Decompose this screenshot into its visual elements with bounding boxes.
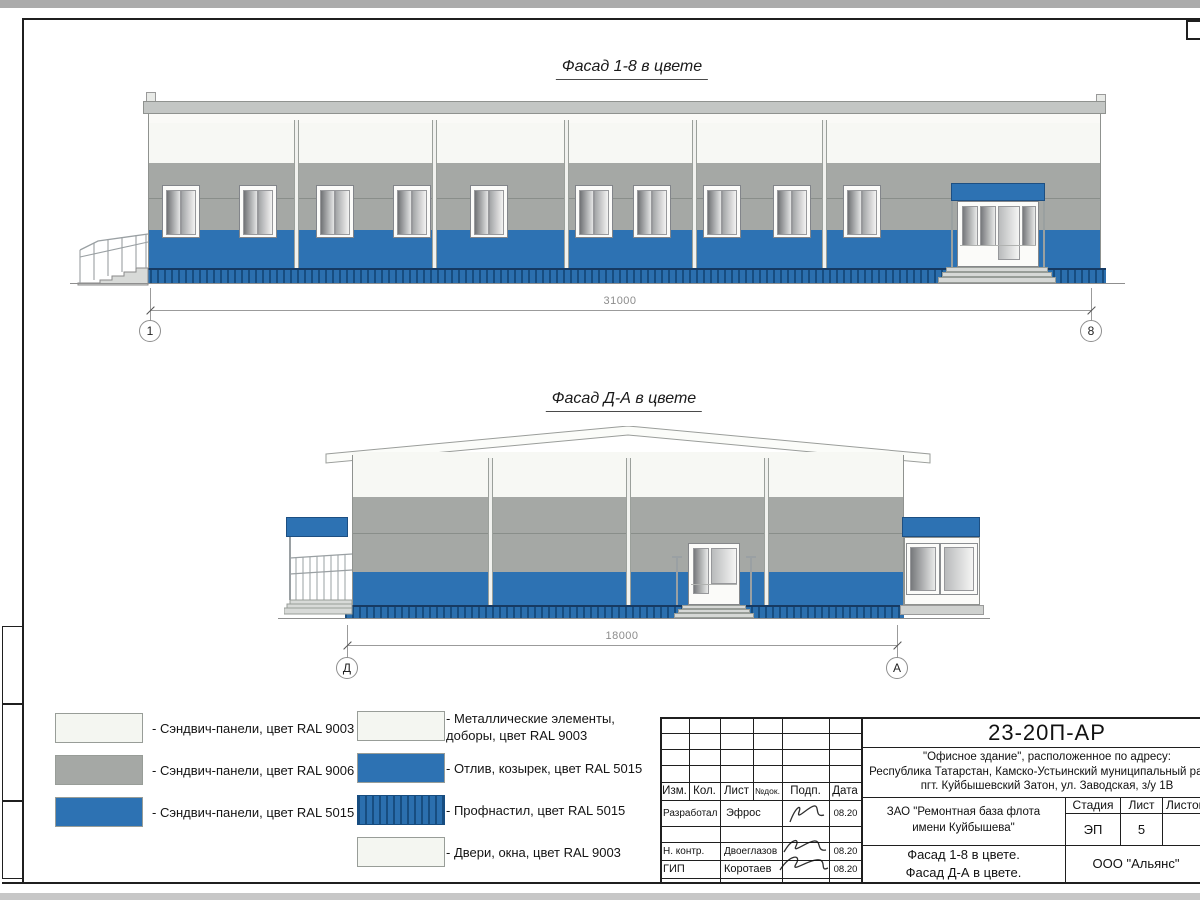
sheets-header: Листов bbox=[1166, 797, 1200, 813]
role-date: 08.20 bbox=[830, 860, 861, 878]
client-line: имени Куйбышева" bbox=[912, 821, 1015, 837]
wall-edge bbox=[1100, 114, 1101, 268]
pilaster bbox=[432, 120, 437, 268]
door-rail bbox=[691, 584, 737, 585]
col-header-kol: Кол. bbox=[689, 782, 720, 800]
axis-marker-a: А bbox=[886, 657, 908, 679]
window-pane bbox=[594, 190, 609, 235]
roof-cap bbox=[143, 101, 1106, 114]
client-name: ЗАО "Ремонтная база флота имени Куйбышев… bbox=[864, 798, 1063, 844]
legend-swatch-profnastil bbox=[357, 795, 445, 825]
pilaster bbox=[764, 458, 769, 605]
door-handrail bbox=[672, 556, 682, 558]
ground-line bbox=[278, 618, 990, 619]
annex-window bbox=[944, 547, 974, 591]
company-name: ООО "Альянс" bbox=[1066, 846, 1200, 881]
window bbox=[393, 185, 431, 238]
side-stairs-drawing bbox=[68, 224, 152, 286]
plinth-profnastil bbox=[345, 605, 904, 618]
address-line: "Офисное здание", расположенное по адрес… bbox=[923, 750, 1171, 765]
address-line: Республика Татарстан, Камско-Устьинский … bbox=[869, 765, 1200, 780]
door-glass bbox=[711, 548, 737, 584]
page-top-strip bbox=[0, 0, 1200, 8]
signature bbox=[776, 836, 830, 880]
dimension-line bbox=[347, 645, 898, 646]
frame-corner-box bbox=[1186, 20, 1200, 40]
extension-line bbox=[347, 625, 348, 658]
role-label: ГИП bbox=[661, 860, 720, 878]
legend-label: - Металлические элементы, доборы, цвет R… bbox=[446, 711, 631, 745]
door-glass bbox=[1022, 206, 1036, 246]
extension-line bbox=[1091, 288, 1092, 321]
window bbox=[316, 185, 354, 238]
role-name: Эфрос bbox=[722, 800, 781, 826]
sheet-subject: Фасад 1-8 в цвете. Фасад Д-А в цвете. bbox=[864, 846, 1063, 881]
role-name: Двоеглазов bbox=[722, 842, 782, 860]
col-header-ndok: №док. bbox=[753, 782, 782, 800]
col-header-podp: Подп. bbox=[782, 782, 829, 800]
dimension-value: 18000 bbox=[605, 630, 638, 642]
stage-header: Стадия bbox=[1066, 797, 1120, 813]
window-pane bbox=[707, 190, 722, 235]
dimension-line bbox=[150, 310, 1091, 311]
margin-box bbox=[2, 703, 24, 802]
annex-window bbox=[910, 547, 936, 591]
window bbox=[470, 185, 508, 238]
role-date: 08.20 bbox=[830, 842, 861, 860]
window-pane bbox=[579, 190, 594, 235]
window-pane bbox=[847, 190, 862, 235]
window-pane bbox=[166, 190, 181, 235]
frame-bottom-line bbox=[2, 882, 1200, 884]
window-pane bbox=[862, 190, 877, 235]
annex-base bbox=[900, 605, 984, 615]
pilaster bbox=[822, 120, 827, 268]
role-name: Коротаев bbox=[722, 860, 782, 878]
window-pane bbox=[320, 190, 335, 235]
legend-swatch-ral9003 bbox=[55, 713, 143, 743]
legend-swatch-ral9003 bbox=[357, 837, 445, 867]
margin-box bbox=[2, 626, 24, 705]
col-header-list: Лист bbox=[720, 782, 753, 800]
window-pane bbox=[181, 190, 196, 235]
window bbox=[703, 185, 741, 238]
entrance-canopy bbox=[951, 183, 1045, 201]
legend-label: - Сэндвич-панели, цвет RAL 9006 bbox=[152, 763, 372, 780]
window-pane bbox=[792, 190, 807, 235]
window-pane bbox=[777, 190, 792, 235]
legend-swatch-ral9003 bbox=[357, 711, 445, 741]
door-glass bbox=[998, 206, 1020, 260]
drawing-sheet: { "facade1": { "title": "Фасад 1-8 в цве… bbox=[0, 0, 1200, 900]
axis-label: 1 bbox=[147, 324, 154, 338]
grid-line bbox=[660, 733, 861, 734]
window-pane bbox=[474, 190, 489, 235]
entry-door-unit bbox=[688, 543, 740, 605]
grid-line bbox=[861, 717, 863, 883]
wall-band-white bbox=[148, 123, 1101, 163]
pilaster bbox=[564, 120, 569, 268]
porch-canopy bbox=[286, 517, 348, 537]
window bbox=[162, 185, 200, 238]
axis-label: Д bbox=[343, 661, 351, 675]
pilaster bbox=[626, 458, 631, 605]
grid-line bbox=[660, 826, 861, 827]
window-pane bbox=[412, 190, 427, 235]
door-handrail bbox=[750, 556, 752, 605]
door-rail bbox=[960, 245, 1036, 246]
pilaster bbox=[692, 120, 697, 268]
window-pane bbox=[637, 190, 652, 235]
doc-number: 23-20П-АР bbox=[864, 719, 1200, 746]
stage-value: ЭП bbox=[1066, 813, 1120, 845]
legend-swatch-ral9006 bbox=[55, 755, 143, 785]
window-pane bbox=[652, 190, 667, 235]
project-address: "Офисное здание", расположенное по адрес… bbox=[864, 748, 1200, 796]
window-pane bbox=[335, 190, 350, 235]
grid-line bbox=[1162, 797, 1163, 845]
margin-box bbox=[2, 800, 24, 879]
legend-swatch-ral5015 bbox=[357, 753, 445, 783]
role-date: 08.20 bbox=[830, 800, 861, 826]
window bbox=[843, 185, 881, 238]
client-line: ЗАО "Ремонтная база флота bbox=[887, 805, 1040, 821]
dimension-value: 31000 bbox=[603, 295, 636, 307]
axis-marker-d: Д bbox=[336, 657, 358, 679]
subject-line: Фасад 1-8 в цвете. bbox=[907, 846, 1020, 864]
subject-line: Фасад Д-А в цвете. bbox=[906, 864, 1022, 882]
annex-canopy bbox=[902, 517, 980, 537]
window-pane bbox=[258, 190, 273, 235]
page-bottom-strip bbox=[0, 893, 1200, 900]
window-pane bbox=[722, 190, 737, 235]
door-glass bbox=[693, 548, 709, 594]
legend-label: - Сэндвич-панели, цвет RAL 5015 bbox=[152, 805, 372, 822]
extension-line bbox=[897, 625, 898, 658]
facade-1-8-title: Фасад 1-8 в цвете bbox=[556, 58, 708, 80]
window bbox=[575, 185, 613, 238]
door-glass bbox=[962, 206, 978, 246]
facade-d-a-title: Фасад Д-А в цвете bbox=[546, 390, 702, 412]
role-label: Н. контр. bbox=[661, 842, 720, 860]
legend-label: - Отлив, козырек, цвет RAL 5015 bbox=[446, 761, 666, 778]
window-pane bbox=[243, 190, 258, 235]
axis-label: А bbox=[893, 661, 901, 675]
legend-swatch-ral5015 bbox=[55, 797, 143, 827]
entrance-post bbox=[951, 201, 953, 267]
window bbox=[773, 185, 811, 238]
window-pane bbox=[489, 190, 504, 235]
sheet-header: Лист bbox=[1121, 797, 1162, 813]
door-glass bbox=[980, 206, 996, 246]
window bbox=[633, 185, 671, 238]
grid-line bbox=[660, 765, 861, 766]
grid-line bbox=[660, 878, 861, 879]
address-line: пгт. Куйбышевский Затон, ул. Заводская, … bbox=[921, 779, 1174, 794]
extension-line bbox=[150, 288, 151, 321]
legend-label: - Сэндвич-панели, цвет RAL 9003 bbox=[152, 721, 372, 738]
frame-top-line bbox=[22, 18, 1200, 20]
legend-label: - Двери, окна, цвет RAL 9003 bbox=[446, 845, 666, 862]
axis-marker-8: 8 bbox=[1080, 320, 1102, 342]
grid-line bbox=[660, 749, 861, 750]
pilaster bbox=[488, 458, 493, 605]
axis-marker-1: 1 bbox=[139, 320, 161, 342]
col-header-izm: Изм. bbox=[660, 782, 689, 800]
legend-label: - Профнастил, цвет RAL 5015 bbox=[446, 803, 666, 820]
door-handrail bbox=[676, 556, 678, 605]
signature bbox=[784, 802, 828, 825]
window-pane bbox=[397, 190, 412, 235]
entrance-door-unit bbox=[957, 201, 1039, 267]
col-header-data: Дата bbox=[829, 782, 861, 800]
entrance-post bbox=[1043, 201, 1045, 267]
door-handrail bbox=[746, 556, 756, 558]
role-label: Разработал bbox=[661, 800, 720, 826]
ground-line bbox=[70, 283, 1125, 284]
window bbox=[239, 185, 277, 238]
sheet-value: 5 bbox=[1121, 813, 1162, 845]
axis-label: 8 bbox=[1088, 324, 1095, 338]
porch-railing-drawing bbox=[284, 537, 354, 618]
pilaster bbox=[294, 120, 299, 268]
